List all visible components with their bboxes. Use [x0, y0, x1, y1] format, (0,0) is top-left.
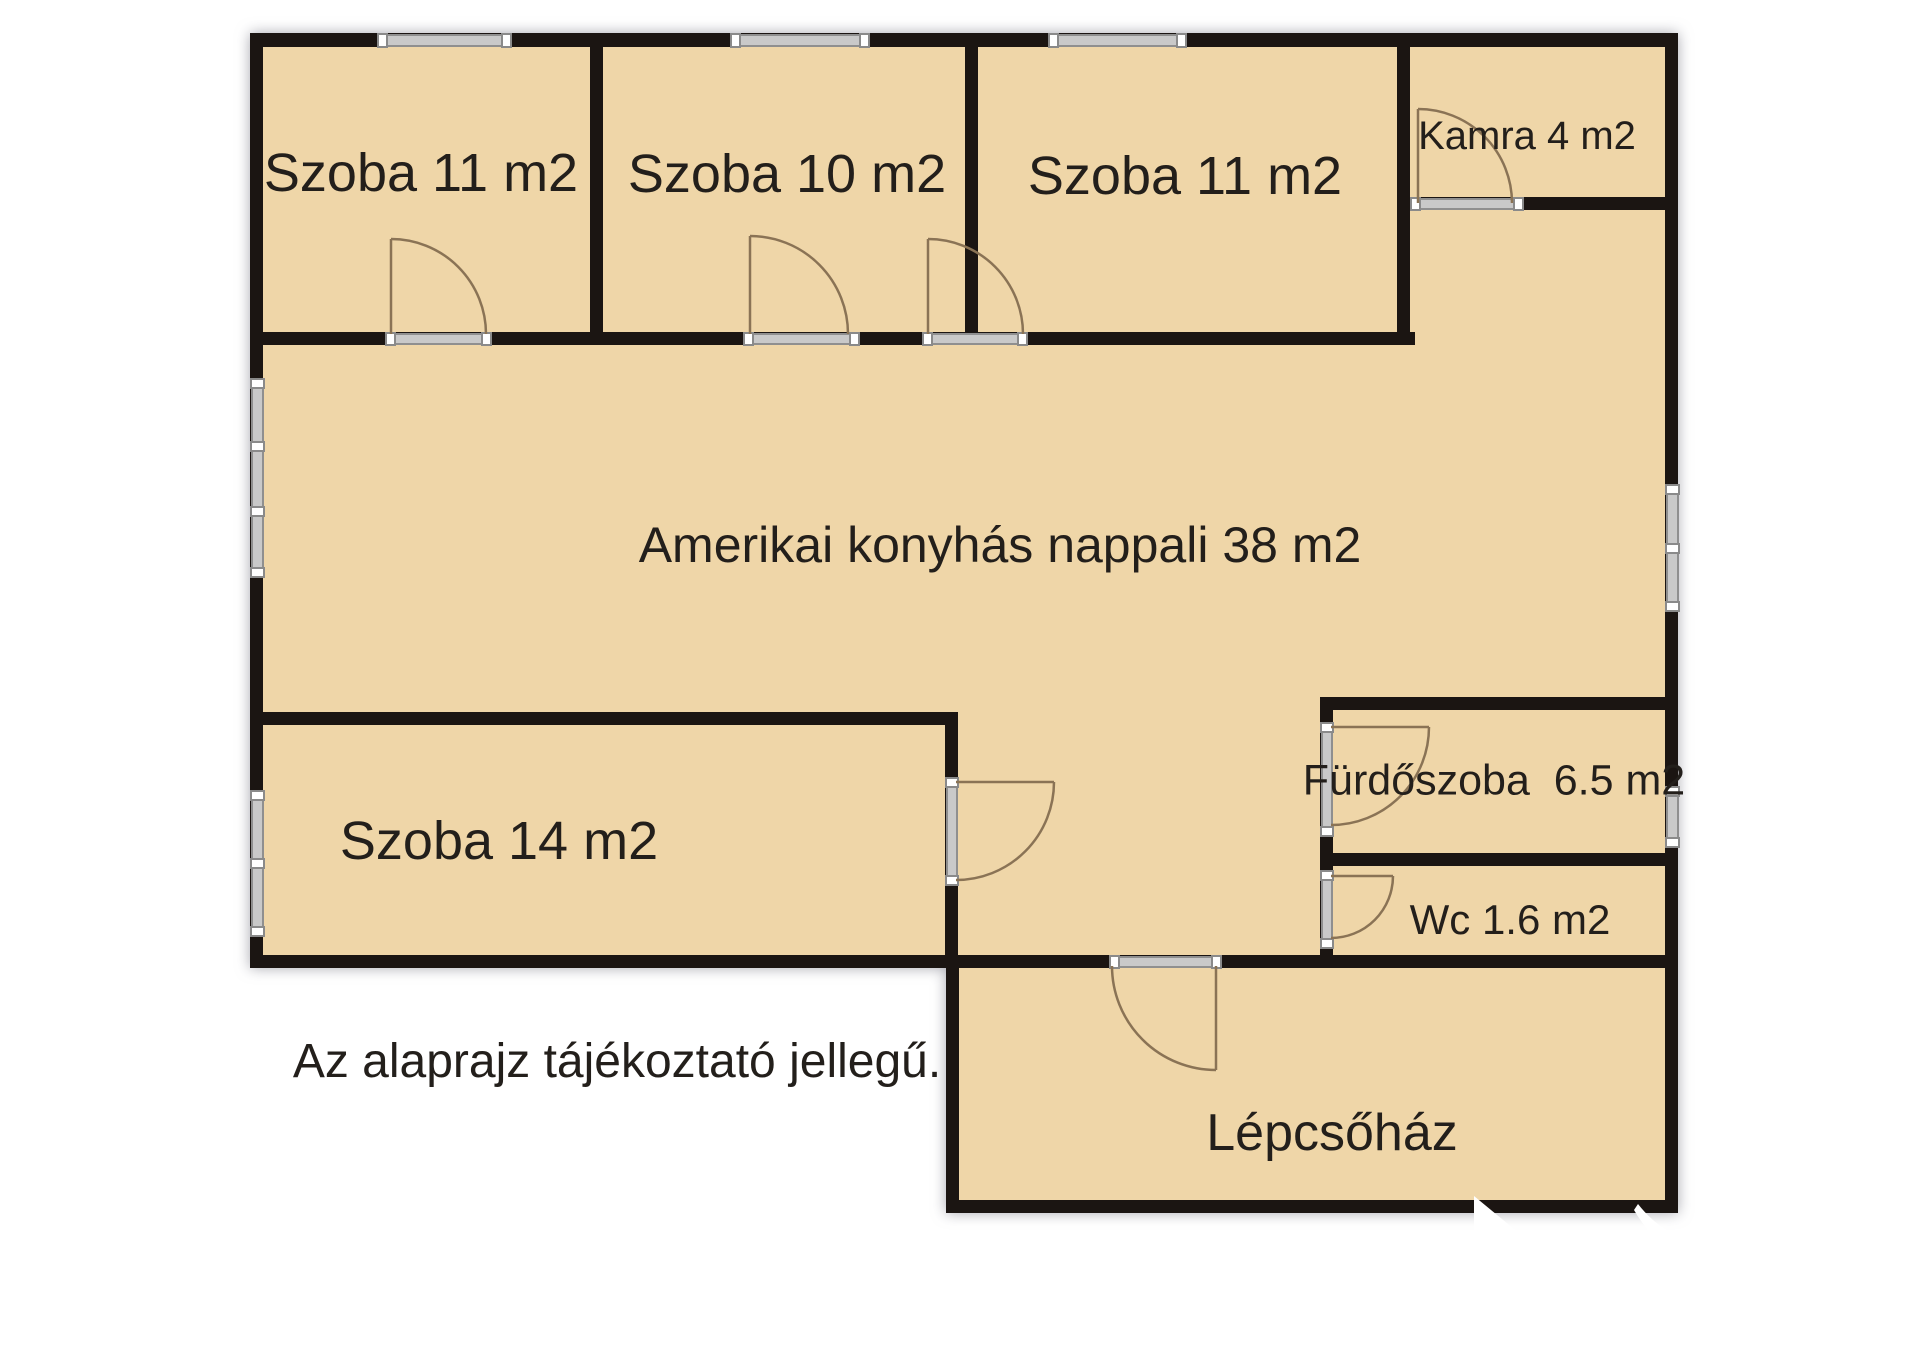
watermark-hook — [1634, 1204, 1670, 1239]
watermark-triangle — [1474, 1196, 1531, 1243]
watermark-arrow — [0, 0, 1920, 1358]
floorplan-canvas: Szoba 11 m2 Szoba 10 m2 Szoba 11 m2 Kamr… — [0, 0, 1920, 1358]
